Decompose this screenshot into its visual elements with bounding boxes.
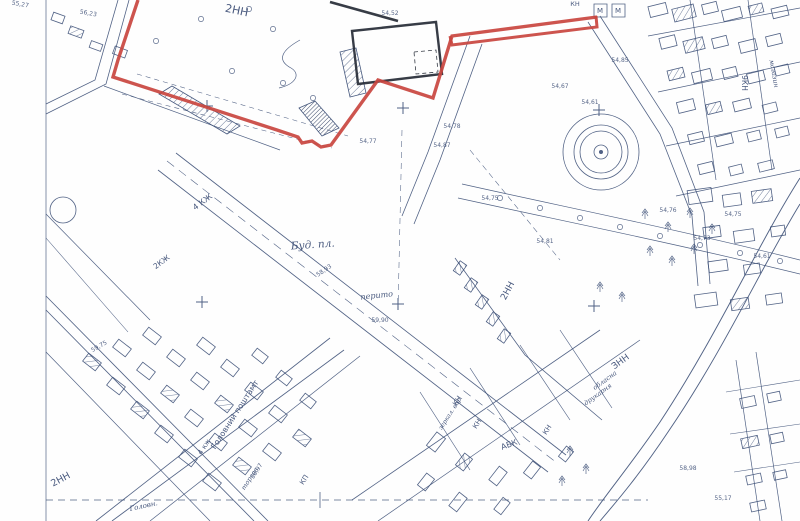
- building: [747, 130, 762, 142]
- building: [155, 425, 174, 443]
- street-line: [398, 130, 402, 310]
- street-line: [726, 380, 800, 392]
- tree-icon: [577, 215, 582, 220]
- street-line: [46, 310, 254, 521]
- building: [263, 443, 282, 461]
- elevation-label: 55,17: [714, 495, 731, 502]
- street-line: [730, 424, 800, 434]
- elevation-label: 54,85: [611, 57, 628, 64]
- label-magazin: магазин: [768, 59, 781, 88]
- building: [143, 327, 162, 345]
- label-golovn: Головн.: [128, 499, 158, 513]
- building: [676, 99, 695, 114]
- street-line: [756, 352, 782, 521]
- tree-icon: [697, 242, 702, 247]
- building: [107, 377, 126, 395]
- building: [708, 259, 728, 273]
- street-line: [352, 330, 600, 500]
- label-bud-pl: Буд. пл.: [289, 237, 335, 252]
- label-kp: КП: [298, 473, 310, 486]
- conifer-icon: [669, 256, 675, 266]
- conifer-icon: [583, 464, 589, 474]
- building: [185, 409, 204, 427]
- building: [51, 12, 65, 24]
- building: [486, 312, 499, 326]
- conifer-icon: [619, 292, 625, 302]
- building: [197, 337, 216, 355]
- building: [203, 473, 222, 491]
- building: [113, 339, 132, 357]
- circle-structure: [599, 150, 602, 153]
- building: [558, 446, 573, 462]
- building: [449, 492, 467, 512]
- building: [131, 401, 150, 419]
- grid-cross-icon: [397, 102, 409, 114]
- building: [775, 126, 790, 138]
- building: [667, 67, 685, 81]
- building: [766, 33, 783, 46]
- label-4kzh: 4 КЖ: [191, 192, 214, 212]
- grid-cross-icon: [392, 298, 404, 310]
- hatched-structures-layer: [159, 48, 366, 136]
- building: [497, 329, 510, 343]
- grid-cross-icon: [196, 296, 208, 308]
- building: [648, 2, 668, 17]
- building: [179, 449, 198, 467]
- building: [464, 278, 477, 292]
- building: [706, 101, 723, 114]
- building: [712, 35, 729, 48]
- building: [733, 98, 752, 112]
- building: [269, 405, 288, 423]
- elevation-label: 54,73: [693, 235, 710, 242]
- building: [475, 295, 488, 309]
- circle-structure: [50, 197, 76, 223]
- building: [455, 453, 472, 471]
- building: [221, 359, 240, 377]
- building: [694, 292, 718, 308]
- map-document: 2НН2НН2ННЗННобласнадрукарняБуд. пл.перит…: [0, 0, 800, 521]
- building: [293, 429, 312, 447]
- building: [83, 353, 102, 371]
- map-canvas: 2НН2НН2ННЗННобласнадрукарняБуд. пл.перит…: [0, 0, 800, 521]
- bold-building-outline: [414, 50, 438, 74]
- building: [729, 164, 744, 176]
- building: [453, 261, 466, 275]
- conifer-icon: [597, 282, 603, 292]
- street-line: [458, 198, 800, 274]
- elevation-label: 59,90: [371, 317, 388, 324]
- tree-icon: [737, 250, 742, 255]
- building: [762, 102, 778, 114]
- street-line: [462, 184, 800, 260]
- building: [730, 297, 749, 310]
- elevation-label: 54,52: [381, 10, 398, 17]
- building: [741, 435, 760, 448]
- building: [698, 161, 715, 174]
- building: [523, 461, 540, 479]
- street-line: [104, 86, 280, 150]
- building: [770, 225, 785, 237]
- label-kn-top: КН: [570, 0, 580, 8]
- building: [751, 189, 772, 204]
- elevation-label: 58,98: [679, 465, 696, 472]
- street-line: [520, 345, 570, 420]
- building: [239, 419, 258, 437]
- tree-icon: [777, 258, 782, 263]
- tree-icon: [270, 26, 275, 31]
- building: [748, 3, 764, 15]
- elevation-label: 55,27: [11, 0, 29, 9]
- zone-2nn-top: 2НН: [224, 2, 250, 20]
- tree-icon: [198, 16, 203, 21]
- building: [417, 473, 434, 491]
- street-line: [96, 338, 330, 521]
- building: [722, 66, 738, 79]
- building: [68, 26, 84, 38]
- elevation-label: 54,75: [481, 195, 498, 202]
- label-kn-2: КН: [471, 417, 483, 430]
- elevation-label: 54,81: [536, 238, 553, 245]
- label-kn-3: КН: [541, 423, 553, 436]
- building: [659, 35, 677, 50]
- tree-icon: [537, 205, 542, 210]
- street-line: [470, 368, 520, 445]
- label-perito: перито: [360, 289, 394, 301]
- building: [252, 348, 269, 364]
- building: [137, 362, 156, 380]
- elevation-label: 54,78: [443, 123, 460, 130]
- tree-icon: [153, 38, 158, 43]
- conifer-icon: [709, 224, 715, 234]
- building: [89, 41, 103, 52]
- elevation-label: 54,75: [724, 211, 741, 218]
- tree-icon: [657, 233, 662, 238]
- street-line: [560, 330, 612, 408]
- building: [161, 385, 180, 403]
- street-line: [46, 0, 129, 114]
- elevation-label: 54,67: [551, 83, 568, 90]
- street-line: [734, 462, 800, 472]
- street-line: [112, 350, 344, 521]
- label-2kzh: 2КЖ: [152, 253, 172, 271]
- elevation-label: 54,87: [433, 142, 450, 149]
- conifer-icon: [642, 209, 648, 219]
- zone-2nn-bottom-left: 2НН: [49, 470, 72, 489]
- zone-2nn-center: 2НН: [499, 280, 517, 302]
- building: [215, 395, 234, 413]
- elevation-label: 54,61: [581, 99, 598, 106]
- grid-cross-icon: [588, 300, 600, 312]
- elevation-label: 54,77: [359, 138, 376, 145]
- hatched-structure: [340, 48, 366, 97]
- conifer-icon: [691, 244, 697, 254]
- street-line: [167, 161, 557, 463]
- hatched-structure: [299, 101, 339, 136]
- label-m-box-2: М: [615, 7, 621, 15]
- elevation-label: 58,93: [315, 263, 333, 279]
- building: [167, 349, 186, 367]
- street-line: [690, 0, 716, 180]
- bold-building-outline: [352, 22, 442, 84]
- building: [191, 372, 210, 390]
- elevation-label: 59,75: [90, 339, 109, 354]
- tree-icon: [229, 68, 234, 73]
- conifer-icon: [647, 246, 653, 256]
- building: [702, 1, 719, 14]
- building: [765, 293, 782, 305]
- tree-icon: [310, 95, 315, 100]
- conifer-icon: [665, 222, 671, 232]
- building: [683, 37, 705, 53]
- tree-icon: [280, 80, 285, 85]
- elevation-label: 54,76: [659, 207, 676, 214]
- elevation-label: 54,61: [753, 253, 770, 260]
- building: [767, 391, 782, 403]
- street-line: [414, 44, 482, 224]
- building: [688, 131, 705, 144]
- label-abk: АБК: [500, 437, 519, 451]
- street-line: [600, 204, 800, 521]
- building: [758, 160, 775, 172]
- elevation-label: 56,23: [79, 9, 97, 19]
- street-line: [748, 0, 772, 170]
- conifer-icon: [559, 476, 565, 486]
- building: [770, 432, 785, 444]
- building: [489, 466, 507, 486]
- tree-icon: [617, 224, 622, 229]
- building: [733, 229, 754, 244]
- label-9kn: 9КН: [740, 75, 749, 91]
- building: [722, 193, 741, 207]
- hatched-structure: [159, 86, 240, 134]
- street-line: [378, 340, 640, 521]
- label-m-box-1: М: [597, 7, 603, 15]
- street-line: [46, 214, 150, 320]
